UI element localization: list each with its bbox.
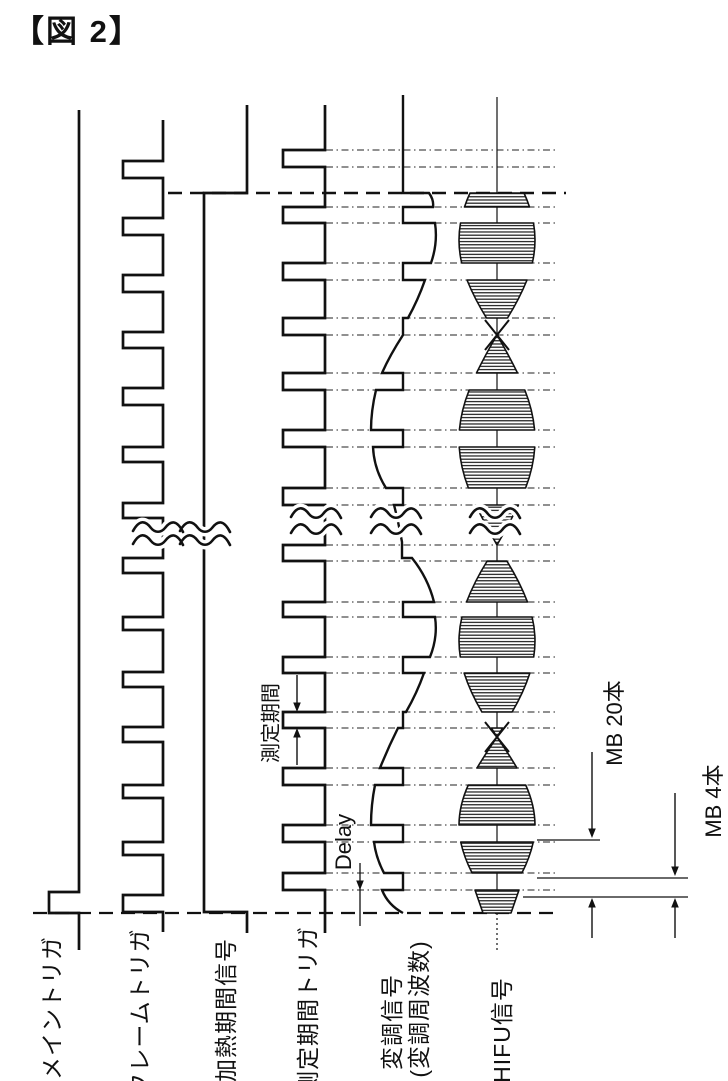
annotation-mb-4: MB 4本	[696, 764, 728, 837]
main-trigger-waveform	[49, 110, 79, 950]
mb-burst-dimensions	[523, 752, 688, 938]
break-marks	[133, 508, 520, 545]
patent-figure-page: 【図 2】 メイントリガ フレームトリガ 加熱期間信号 測定期間トリガ 変調信号…	[0, 0, 728, 1081]
label-main-trigger: メイントリガ	[33, 936, 67, 1080]
label-measurement-trigger: 測定期間トリガ	[289, 926, 323, 1081]
label-hifu-signal: HIFU信号	[483, 977, 517, 1081]
delay-dimension	[356, 863, 364, 926]
annotation-mb-20: MB 20本	[597, 680, 629, 766]
label-frame-trigger: フレームトリガ	[121, 928, 155, 1081]
figure-title: 【図 2】	[13, 6, 142, 51]
annotation-measurement-period: 測定期間	[255, 683, 284, 763]
annotation-delay: Delay	[331, 814, 357, 870]
figure-canvas	[0, 0, 728, 1081]
heating-period-waveform	[204, 105, 247, 933]
label-heating-period: 加熱期間信号	[207, 938, 241, 1081]
measurement-period-dimension	[293, 675, 301, 765]
label-modulation-line2: (変調周波数)	[400, 940, 434, 1077]
